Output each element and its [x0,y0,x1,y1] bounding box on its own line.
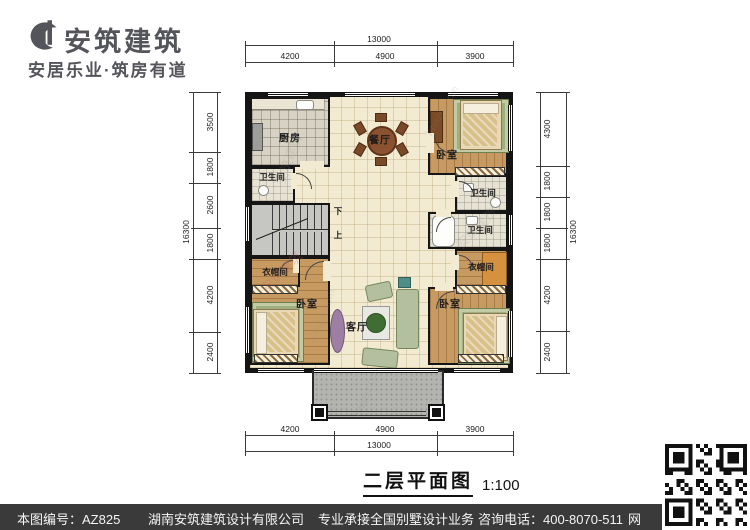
sliding-door [314,368,438,373]
porch-column [428,404,445,421]
drawing-scale: 1:100 [482,477,520,497]
bay-window-hatch [458,354,504,363]
dim-top-seg: 3900 [465,51,486,61]
floor-plan: 厨房 餐厅 卫生间 卧室 卫生间 卫生间 衣帽间 衣帽间 卧室 卧室 客厅 下 … [245,92,513,373]
dim-left-overall: 16300 [181,219,191,245]
dim-left-seg: 1800 [205,157,215,178]
door-gap [293,259,299,273]
dim-right-seg: 1800 [542,233,552,254]
dim-line [245,451,513,452]
dim-bottom-overall: 13000 [366,440,392,450]
wardrobe-hatch [456,285,506,294]
door-gap [436,209,451,217]
logo: 安筑建筑 安居乐业·筑房有道 [0,0,220,90]
dining-chair [375,157,387,166]
window [508,105,513,151]
dim-tick [245,41,246,67]
dim-tick [437,431,438,456]
dim-left-seg: 1800 [205,233,215,254]
door-gap [300,161,324,169]
window [245,307,250,353]
window [454,368,500,373]
bed-pillows [256,312,267,354]
staircase [250,203,330,257]
tv-console [330,309,345,353]
label-kitchen: 厨房 [279,130,301,145]
bed-blanket [463,114,497,146]
drawing-title-text: 二层平面图 [363,466,473,497]
door-gap [451,181,459,197]
label-cloak-left: 衣帽间 [262,266,288,278]
dim-tick [189,92,221,93]
bed-pillows [496,316,507,358]
plant [366,313,386,333]
qr-code [662,440,750,530]
footer-service: 专业承接全国别墅设计业务 [318,509,474,528]
porch-column [311,404,328,421]
company-slogan: 安居乐业·筑房有道 [28,56,188,81]
dim-tick [334,431,335,456]
dim-tick [437,41,438,67]
dim-tick [536,166,570,167]
label-living: 客厅 [346,319,368,334]
footer-web-badge: 网 [628,509,641,528]
porch [312,370,444,419]
dining-chair [395,121,409,136]
bay-window-hatch [254,354,298,363]
logo-building-icon [22,14,62,52]
wardrobe-hatch [252,285,298,294]
armchair [365,280,394,302]
bed-pillows [463,103,499,114]
dining-chair [375,113,387,122]
dim-right-seg: 1800 [542,171,552,192]
dim-tick [189,373,221,374]
label-stair-down: 下 [334,205,343,217]
dim-bottom-seg: 3900 [465,424,486,434]
dim-top-seg: 4900 [375,51,396,61]
label-bath-right-upper: 卫生间 [470,187,496,199]
dim-tick [536,92,570,93]
porch-railing [326,411,426,416]
dim-tick [189,259,221,260]
label-stair-up: 上 [334,229,343,241]
dim-right-seg: 4300 [542,119,552,140]
footer-phone: 咨询电话：400-8070-511 [478,509,623,528]
dining-chair [353,142,367,157]
label-bath-right-lower: 卫生间 [467,224,493,236]
bed-top-right [460,100,502,150]
dim-tick [513,431,514,456]
dim-tick [189,183,221,184]
dim-left-seg: 3500 [205,112,215,133]
dim-tick [536,197,570,198]
dim-tick [245,431,246,456]
window [508,215,513,245]
dim-left-seg: 2400 [205,342,215,363]
label-bath-left: 卫生间 [259,171,285,183]
sofa-main [396,289,419,349]
dim-tick [536,259,570,260]
bed-blanket [267,312,295,352]
dim-line [217,92,218,373]
dim-top-seg: 4200 [280,51,301,61]
toilet [258,185,269,196]
dim-left-seg: 4200 [205,285,215,306]
footer-company: 湖南安筑建筑设计有限公司 [148,509,304,528]
dim-tick [189,228,221,229]
qr-code-svg [665,443,747,527]
dim-line [245,435,513,436]
side-table [398,277,411,288]
label-bedroom-bottom-right: 卧室 [439,296,461,311]
sheet: { "logo": { "company": "安筑建筑", "slogan":… [0,0,750,530]
dim-right-seg: 4200 [542,285,552,306]
window [258,368,304,373]
door-gap [451,255,459,270]
dim-tick [189,152,221,153]
window [345,92,415,97]
door-gap [323,261,331,281]
dim-bottom-seg: 4900 [375,424,396,434]
dining-chair [395,142,409,157]
company-name: 安筑建筑 [64,20,184,59]
dim-right-seg: 2400 [542,342,552,363]
door-gap [435,283,453,291]
drawing-title: 二层平面图 1:100 [363,466,520,497]
label-dining: 餐厅 [369,132,391,147]
window [268,92,308,97]
dim-left-seg: 2600 [205,195,215,216]
dim-line [193,92,194,373]
dim-tick [189,332,221,333]
door-gap [426,133,434,153]
window [508,311,513,357]
dim-right-overall: 16300 [568,219,578,245]
window [448,92,498,97]
dim-tick [536,373,570,374]
drawing-number: 本图编号：AZ825 [17,509,120,528]
dim-bottom-seg: 4200 [280,424,301,434]
label-bedroom-top-right: 卧室 [436,147,458,162]
dim-tick [536,228,570,229]
wardrobe-hatch [455,167,505,176]
dim-line [245,45,513,46]
label-bedroom-bottom-left: 卧室 [296,296,318,311]
bed-blanket [466,316,494,356]
dim-top-overall: 13000 [366,34,392,44]
window [245,207,250,241]
dim-right-seg: 1800 [542,202,552,223]
dim-line [245,62,513,63]
label-cloak-right: 衣帽间 [468,261,494,273]
footer-bar: 本图编号：AZ825 湖南安筑建筑设计有限公司 专业承接全国别墅设计业务 咨询电… [0,504,750,530]
dim-tick [334,41,335,67]
dim-tick [536,331,570,332]
chaise [361,347,399,369]
door-arc [296,173,312,189]
dining-chair [353,121,367,136]
dim-tick [513,41,514,67]
fridge [252,123,263,151]
kitchen-sink [296,100,314,110]
bed-bottom-left [253,309,299,357]
